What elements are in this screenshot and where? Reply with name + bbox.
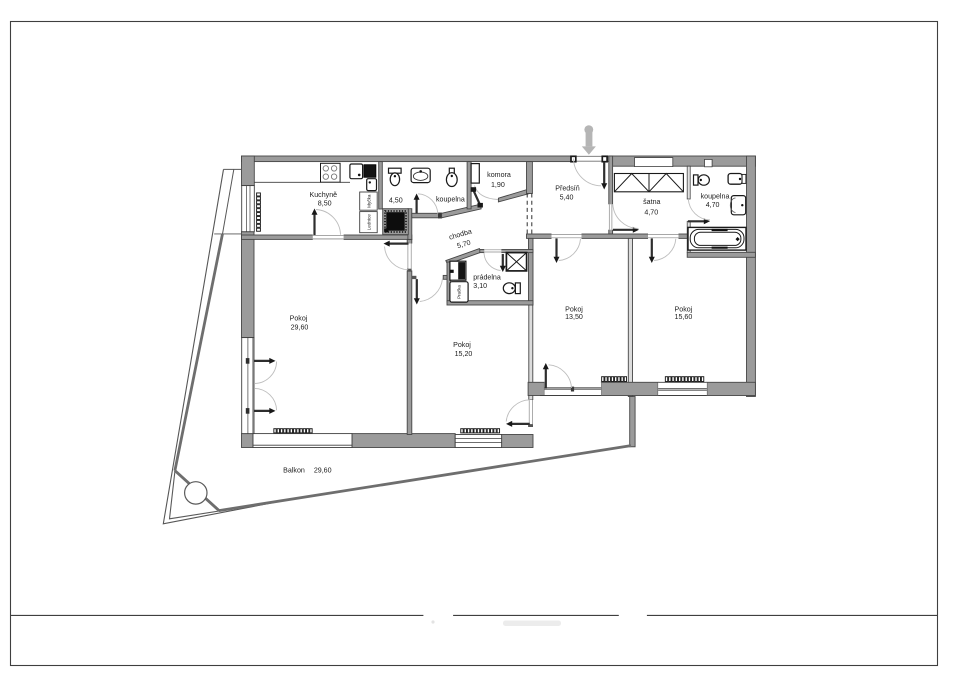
svg-text:šatna: šatna: [643, 198, 660, 206]
svg-text:8,50: 8,50: [318, 199, 332, 207]
svg-text:Kuchyně: Kuchyně: [309, 191, 337, 199]
svg-text:29,60: 29,60: [291, 323, 309, 331]
svg-text:komora: komora: [487, 171, 511, 179]
svg-text:13,50: 13,50: [565, 313, 583, 321]
svg-text:4,50: 4,50: [389, 197, 403, 205]
svg-text:Předsíň: Předsíň: [555, 184, 580, 192]
svg-text:Lednice: Lednice: [367, 214, 372, 231]
svg-text:Pokoj: Pokoj: [453, 341, 471, 349]
svg-text:3,10: 3,10: [473, 282, 487, 290]
svg-text:4,70: 4,70: [644, 209, 658, 217]
svg-text:15,20: 15,20: [455, 350, 473, 358]
svg-text:Myčka: Myčka: [367, 194, 372, 208]
svg-text:15,60: 15,60: [675, 313, 693, 321]
svg-text:5,70: 5,70: [456, 239, 472, 251]
svg-text:Pračka: Pračka: [457, 285, 462, 299]
svg-text:4,70: 4,70: [706, 201, 720, 209]
svg-text:koupelna: koupelna: [436, 196, 465, 204]
svg-text:koupelna: koupelna: [701, 192, 730, 200]
svg-text:Pokoj: Pokoj: [290, 314, 308, 322]
svg-text:29,60: 29,60: [314, 466, 332, 474]
svg-text:5,40: 5,40: [560, 194, 574, 202]
svg-text:prádelna: prádelna: [473, 273, 501, 281]
svg-text:Balkon: Balkon: [283, 466, 305, 474]
svg-text:1,90: 1,90: [491, 181, 505, 189]
